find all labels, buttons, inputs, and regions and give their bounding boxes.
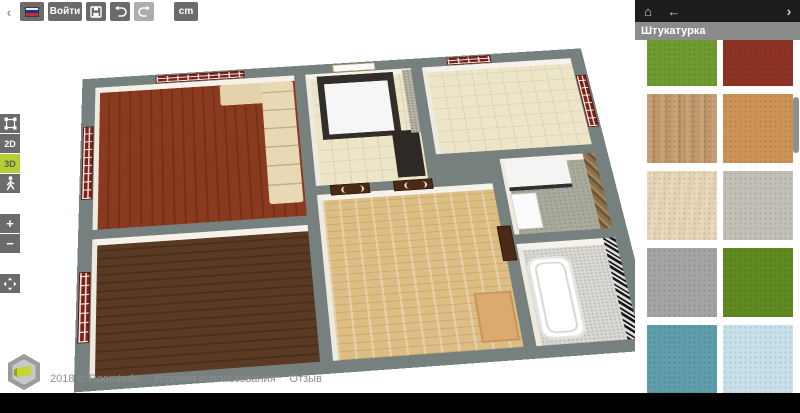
- selection-frame-icon: [4, 117, 17, 130]
- save-button[interactable]: [86, 2, 106, 21]
- center-view-button[interactable]: [0, 274, 20, 293]
- swatch-stucco-teal[interactable]: [647, 325, 717, 394]
- panel-header: ⌂ ← ›: [635, 0, 800, 22]
- swatch-stucco-gray[interactable]: [647, 248, 717, 317]
- room-top-right[interactable]: [422, 58, 592, 154]
- view-2d-button[interactable]: 2D: [0, 134, 20, 153]
- roomtodo-logo-icon: [6, 353, 42, 391]
- floorplan-walls[interactable]: [74, 48, 658, 392]
- swatch-stone-light-gray[interactable]: [723, 171, 793, 240]
- footer: 2018 © Roomtodo Условия использования От…: [6, 353, 322, 391]
- texture-grid: [647, 17, 793, 413]
- top-toolbar: ‹ Войти cm: [2, 2, 198, 21]
- swatch-stucco-cream-wave[interactable]: [647, 171, 717, 240]
- zoom-out-button[interactable]: −: [0, 234, 20, 253]
- home-icon[interactable]: ⌂: [635, 4, 661, 19]
- panel-back-icon[interactable]: ←: [661, 4, 687, 19]
- select-walls-button[interactable]: [0, 114, 20, 133]
- floppy-icon: [90, 6, 102, 18]
- walk-mode-button[interactable]: [0, 174, 20, 193]
- app-canvas: ‹ Войти cm: [0, 0, 800, 413]
- swatch-grass-green[interactable]: [723, 248, 793, 317]
- swatch-stucco-terracotta[interactable]: [723, 94, 793, 163]
- panel-title: Штукатурка: [635, 22, 800, 40]
- redo-icon: [138, 5, 151, 18]
- swatch-stucco-light-blue[interactable]: [723, 325, 793, 394]
- unit-selector-button[interactable]: cm: [174, 2, 198, 21]
- login-button[interactable]: Войти: [48, 2, 82, 21]
- language-flag-button[interactable]: [20, 2, 44, 21]
- bottom-letterbox-bar: [0, 393, 800, 413]
- undo-button[interactable]: [110, 2, 130, 21]
- window-living-left[interactable]: [81, 126, 94, 200]
- sidebar-spacer: [0, 254, 20, 274]
- center-arrows-icon: [3, 277, 17, 291]
- double-bed[interactable]: [317, 72, 402, 140]
- floorplan-viewport[interactable]: [74, 48, 658, 392]
- terms-link[interactable]: Условия использования: [153, 373, 275, 385]
- back-icon[interactable]: ‹: [2, 2, 16, 21]
- copyright-text: 2018 © Roomtodo: [50, 373, 139, 385]
- panel-scrollbar-thumb[interactable]: [793, 97, 799, 153]
- zoom-in-button[interactable]: +: [0, 214, 20, 233]
- russian-flag-icon: [25, 7, 39, 17]
- feedback-link[interactable]: Отзыв: [290, 373, 322, 385]
- sidebar-spacer: [0, 194, 20, 214]
- walking-person-icon: [5, 176, 16, 191]
- swatch-wood-light[interactable]: [647, 94, 717, 163]
- view-3d-button[interactable]: 3D: [0, 154, 20, 173]
- kitchen-cabinets[interactable]: [504, 158, 573, 192]
- tools-sidebar: 2D 3D + −: [0, 114, 20, 294]
- texture-panel: ⌂ ← › Штукатурка: [635, 0, 800, 413]
- window-bottomleft[interactable]: [77, 272, 90, 344]
- redo-button[interactable]: [134, 2, 154, 21]
- panel-next-icon[interactable]: ›: [778, 3, 800, 19]
- undo-icon: [114, 5, 127, 18]
